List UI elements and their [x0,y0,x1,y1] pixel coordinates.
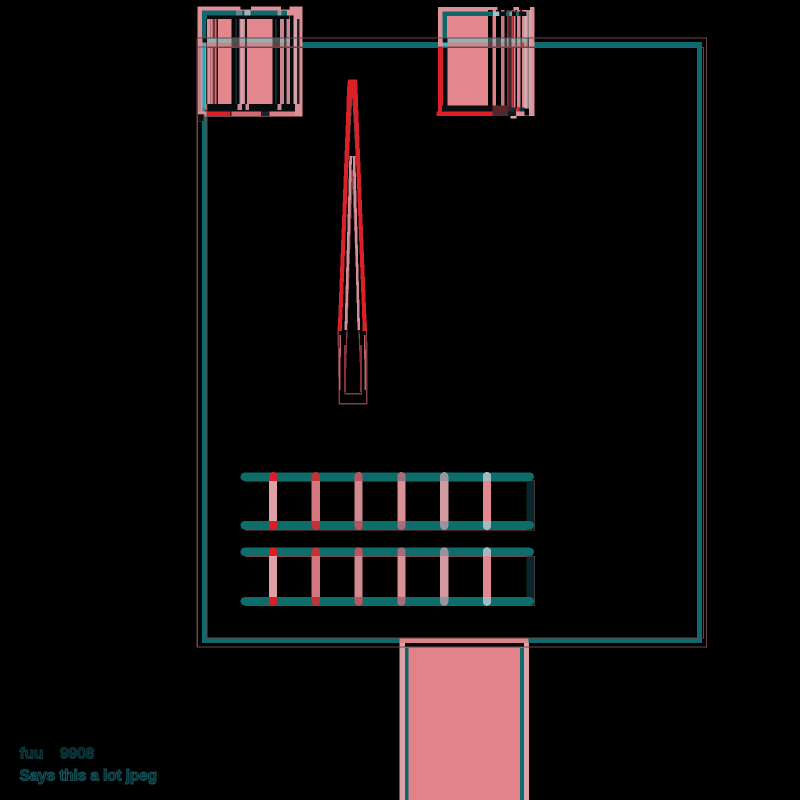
svg-text:Says this a lot jpeg: Says this a lot jpeg [20,768,157,785]
svg-text:fuu 9908: fuu 9908 [20,746,95,763]
